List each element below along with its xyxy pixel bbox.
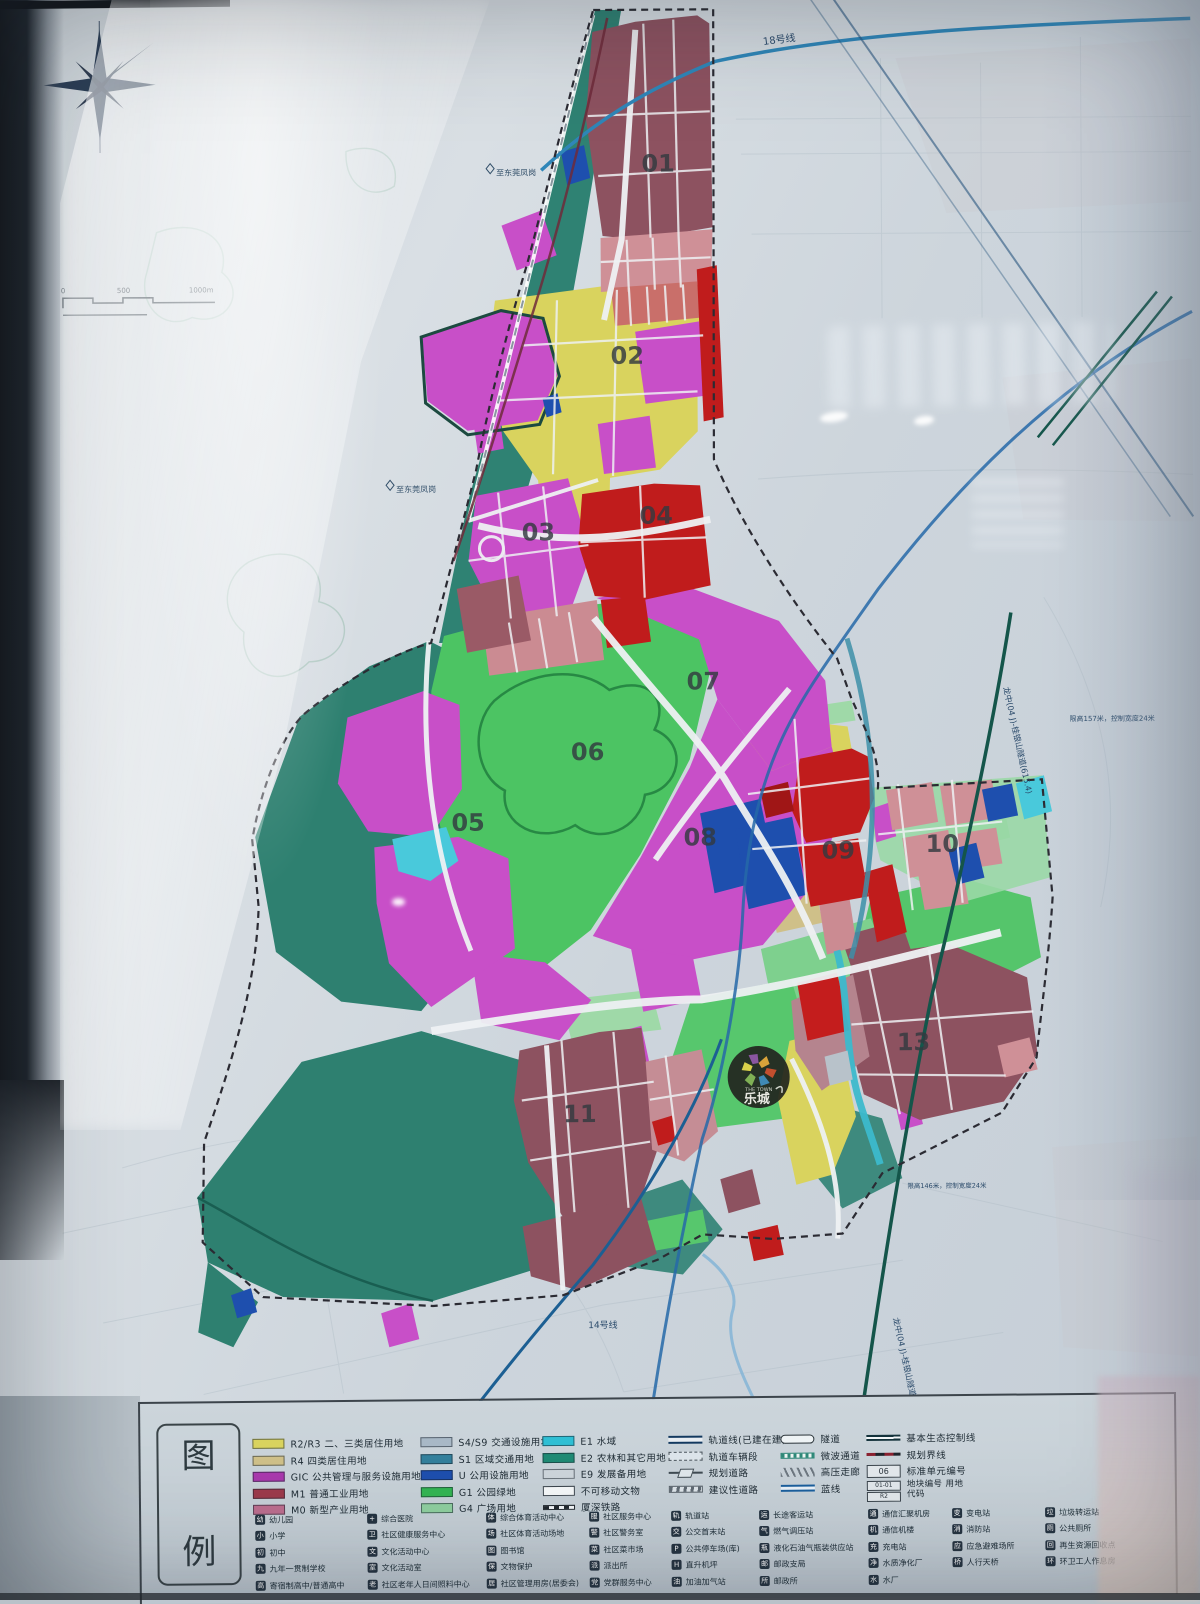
facility-label: 文化活动室 <box>382 1562 422 1573</box>
facility-icon: 桥 <box>953 1557 963 1567</box>
legend-swatch <box>421 1470 453 1480</box>
facility-icon: 幼 <box>255 1515 265 1525</box>
district-number-03: 03 <box>522 518 556 546</box>
facility-icon: 轨 <box>671 1511 681 1521</box>
facility-label: 社区警务室 <box>603 1528 643 1539</box>
legend-landuse-label: G1 公园绿地 <box>459 1484 516 1499</box>
legend-linesymbol-label: 轨道线(已建在建) <box>708 1432 786 1447</box>
facility-label: 再生资源回收点 <box>1059 1539 1115 1551</box>
legend-panel: 图 例 R2/R3 二、三类居住用地R4 四类居住用地GIC 公共管理与服务设施… <box>138 1392 1178 1604</box>
legend-linesymbol-label: 地块编号 用地代码 <box>907 1480 967 1500</box>
legend-facility-item: 机通信机楼 <box>868 1525 914 1536</box>
legend-linesymbol-label: 轨道车辆段 <box>708 1449 758 1463</box>
facility-icon: 消 <box>952 1524 962 1534</box>
legend-facility-item: 高寄宿制高中/普通高中 <box>256 1580 345 1592</box>
legend-swatch <box>543 1504 575 1509</box>
facility-icon: 小 <box>255 1531 265 1541</box>
legend-landuse-label: S1 区域交通用地 <box>458 1451 534 1466</box>
facility-label: 幼儿园 <box>269 1515 293 1526</box>
scale-500: 500 <box>117 287 130 295</box>
legend-linesymbol-item: 隧道 <box>780 1431 840 1446</box>
district-number-08: 08 <box>683 823 717 851</box>
legend-linesymbol-item: 轨道车辆段 <box>668 1449 758 1464</box>
legend-landuse-item: R2/R3 二、三类居住用地 <box>252 1435 403 1450</box>
legend-facility-item: 保文物保护 <box>487 1561 533 1572</box>
legend-linesymbol-item: 建议性道路 <box>669 1482 759 1497</box>
facility-icon: P <box>671 1544 681 1554</box>
facility-label: 文物保护 <box>501 1561 533 1572</box>
legend-facility-item: 警社区警务室 <box>589 1528 643 1540</box>
facility-label: 人行天桥 <box>967 1557 999 1568</box>
legend-landuse-item: S1 区域交通用地 <box>420 1451 534 1466</box>
legend-title-char-1: 图 <box>181 1439 215 1473</box>
legend-facility-item: 回再生资源回收点 <box>1045 1539 1115 1551</box>
facility-icon: 初 <box>255 1548 265 1558</box>
legend-facility-item: 邮邮政支局 <box>760 1559 806 1570</box>
legend-linesymbol-item: 微波通道 <box>780 1448 860 1463</box>
legend-facility-item: 交公交首末站 <box>671 1527 725 1539</box>
legend-swatch <box>421 1486 453 1496</box>
fenggang-label-2: 至东莞凤岗 <box>396 484 436 494</box>
district-number-06: 06 <box>571 738 605 766</box>
facility-icon: 体 <box>486 1513 496 1523</box>
legend-landuse-label: R4 四类居住用地 <box>290 1452 366 1467</box>
facility-icon: 图 <box>486 1545 496 1555</box>
legend-swatch <box>253 1488 285 1498</box>
legend-linesymbol-item: 规划界线 <box>866 1447 946 1462</box>
legend-landuse-item: E9 发展备用地 <box>543 1466 647 1481</box>
facility-icon: 服 <box>589 1512 599 1522</box>
facility-label: 小学 <box>269 1531 285 1542</box>
facility-icon: 九 <box>256 1564 266 1574</box>
district-number-13: 13 <box>897 1028 931 1056</box>
district-number-04: 04 <box>639 502 673 530</box>
facility-icon: 交 <box>671 1527 681 1537</box>
facility-label: 直升机坪 <box>686 1560 718 1571</box>
facility-label: 社区老年人日间照料中心 <box>382 1578 470 1590</box>
facility-label: 综合医院 <box>381 1513 413 1524</box>
facility-label: 环卫工人作息房 <box>1060 1556 1116 1568</box>
facility-label: 公共厕所 <box>1059 1523 1091 1534</box>
boundary-symbol <box>867 1453 901 1456</box>
legend-facility-item: 老社区老年人日间照料中心 <box>368 1578 470 1590</box>
legend-facility-item: 净水质净化厂 <box>869 1558 923 1570</box>
facility-icon: 所 <box>760 1576 770 1586</box>
legend-linesymbol-label: 高压走廊 <box>821 1464 861 1478</box>
legend-facility-item: 油加油加气站 <box>672 1576 726 1588</box>
legend-facility-item: 所邮政所 <box>760 1575 798 1586</box>
planning-board-photo: 010203040506070809101113 18号线 14号线 至东莞凤岗… <box>0 0 1200 1600</box>
legend-landuse-label: U 公用设施用地 <box>459 1467 529 1482</box>
legend-facility-item: 桥人行天桥 <box>953 1557 999 1568</box>
planning-map-svg: 010203040506070809101113 18号线 14号线 至东莞凤岗… <box>0 0 1200 1604</box>
facility-label: 水厂 <box>883 1574 899 1585</box>
legend-landuse-item: 不可移动文物 <box>543 1483 641 1498</box>
facility-label: 公交首末站 <box>685 1527 725 1538</box>
legend-landuse-label: R2/R3 二、三类居住用地 <box>290 1435 403 1450</box>
legend-landuse-item: GIC 公共管理与服务设施用地 <box>253 1468 421 1484</box>
legend-linesymbol-label: 规划界线 <box>906 1447 946 1461</box>
facility-label: 通信机楼 <box>882 1525 914 1536</box>
legend-swatch <box>543 1469 575 1479</box>
depot-symbol <box>669 1452 703 1461</box>
facility-icon: 回 <box>1045 1540 1055 1550</box>
facility-icon: 变 <box>952 1508 962 1518</box>
legend-landuse-label: S4/S9 交通设施用地 <box>458 1434 550 1449</box>
facility-label: 加油加气站 <box>686 1576 726 1587</box>
legend-landuse-label: GIC 公共管理与服务设施用地 <box>291 1468 421 1483</box>
unit-no-symbol: 06 <box>867 1464 901 1477</box>
facility-label: 变电站 <box>966 1508 990 1519</box>
facility-label: 充电站 <box>882 1541 906 1552</box>
legend-landuse-label: E9 发展备用地 <box>581 1466 647 1481</box>
legend-linesymbol-label: 基本生态控制线 <box>906 1430 975 1445</box>
legend-facility-item: 初初中 <box>255 1547 285 1558</box>
legend-landuse-item: R4 四类居住用地 <box>252 1452 366 1467</box>
scale-bar: 0 500 1000m <box>61 286 215 315</box>
legend-landuse-item: M1 普通工业用地 <box>253 1485 369 1500</box>
line18-label: 18号线 <box>762 31 796 48</box>
district-number-05: 05 <box>451 809 485 837</box>
legend-facility-item: 厕公共厕所 <box>1045 1523 1091 1534</box>
legend-linesymbol-item: 蓝线 <box>781 1481 841 1496</box>
legend-facility-item: 党党群服务中心 <box>590 1577 652 1589</box>
blue-line-symbol <box>781 1485 815 1492</box>
legend-facility-item: 应应急避难场所 <box>952 1540 1014 1552</box>
legend-facility-item: 瓶液化石油气瓶装供应站 <box>759 1542 853 1554</box>
legend-swatch <box>421 1453 453 1463</box>
legend-title-char-2: 例 <box>182 1535 216 1569</box>
facility-label: 图书馆 <box>500 1545 524 1556</box>
facility-icon: 环 <box>1046 1556 1056 1566</box>
fenggang-marker-icon <box>486 164 494 174</box>
legend-facility-item: 居社区管理用房(居委会) <box>487 1577 579 1589</box>
legend-linesymbol-item: 01-01R2地块编号 用地代码 <box>867 1480 967 1502</box>
facility-label: 邮政所 <box>774 1575 798 1586</box>
facility-icon: 机 <box>868 1525 878 1535</box>
legend-swatch <box>253 1472 285 1482</box>
facility-label: 垃圾转运站 <box>1059 1507 1099 1518</box>
suggested-road-symbol <box>669 1486 703 1493</box>
facility-label: 综合体育活动中心 <box>500 1512 564 1524</box>
facility-label: 党群服务中心 <box>604 1577 652 1588</box>
facility-icon: 运 <box>759 1510 769 1520</box>
legend-linesymbol-label: 隧道 <box>820 1431 840 1445</box>
facility-label: 液化石油气瓶装供应站 <box>773 1542 853 1554</box>
legend-landuse-item: U 公用设施用地 <box>421 1467 529 1482</box>
district-number-09: 09 <box>822 836 856 864</box>
background-blocks <box>895 38 1198 1358</box>
legend-linesymbol-item: 基本生态控制线 <box>866 1430 975 1445</box>
legend-facility-item: +综合医院 <box>367 1513 413 1524</box>
rail-line-symbol <box>668 1436 702 1444</box>
legend-linesymbol-item: 06标准单元编号 <box>867 1463 967 1478</box>
legend-landuse-label: 不可移动文物 <box>581 1483 641 1498</box>
facility-label: 初中 <box>269 1547 285 1558</box>
microwave-symbol <box>781 1452 815 1458</box>
legend-swatch <box>543 1485 575 1495</box>
facility-icon: 保 <box>487 1562 497 1572</box>
legend-facility-item: 消消防站 <box>952 1524 990 1535</box>
legend-swatch <box>542 1436 574 1446</box>
facility-icon: 垃 <box>1045 1507 1055 1517</box>
legend-landuse-label: M0 新型产业用地 <box>291 1502 369 1517</box>
legend-landuse-item: S4/S9 交通设施用地 <box>420 1434 550 1449</box>
facility-label: 轨道站 <box>685 1511 709 1522</box>
facility-icon: 通 <box>868 1509 878 1519</box>
legend-facility-item: 菜社区菜市场 <box>589 1544 643 1556</box>
legend-facility-item: 变变电站 <box>952 1508 990 1519</box>
facility-label: 文化活动中心 <box>381 1546 429 1557</box>
lecheng-logo: THE TOWN 乐城 <box>728 1046 790 1108</box>
facility-icon: 文 <box>367 1547 377 1557</box>
legend-linesymbol-item: 高压走廊 <box>781 1464 861 1479</box>
facility-label: 社区管理用房(居委会) <box>501 1577 579 1589</box>
legend-facility-item: 图图书馆 <box>486 1545 524 1556</box>
facility-icon: 瓶 <box>759 1543 769 1553</box>
facility-icon: 充 <box>868 1542 878 1552</box>
legend-landuse-label: E1 水域 <box>580 1433 616 1447</box>
tunnel-symbol <box>780 1434 814 1443</box>
logo-text-name: 乐城 <box>744 1091 770 1107</box>
facility-label: 社区菜市场 <box>603 1544 643 1555</box>
legend-swatch <box>420 1437 452 1447</box>
fenggang-label-1: 至东莞凤岗 <box>496 167 536 177</box>
scale-0: 0 <box>61 287 66 295</box>
facility-icon: 高 <box>256 1580 266 1590</box>
legend-linesymbol-label: 标准单元编号 <box>907 1463 967 1478</box>
note-bottom: 限高146米，控制宽度24米 <box>907 1181 987 1190</box>
compass-rose-icon <box>43 21 156 154</box>
legend-facility-item: 环环卫工人作息房 <box>1046 1556 1116 1568</box>
planned-road-symbol <box>669 1472 703 1474</box>
facility-label: 长途客运站 <box>773 1510 813 1521</box>
facility-label: 应急避难场所 <box>966 1540 1014 1551</box>
legend-landuse-item: E2 农林和其它用地 <box>542 1449 666 1464</box>
legend-facility-item: 气燃气调压站 <box>759 1526 813 1538</box>
line14-label: 14号线 <box>588 1319 618 1331</box>
legend-linesymbol-label: 微波通道 <box>820 1448 860 1462</box>
legend-swatch <box>253 1455 285 1465</box>
plot-no-symbol: 01-01R2 <box>867 1480 901 1501</box>
legend-facility-item: 九九年一贯制学校 <box>256 1563 326 1575</box>
facility-icon: 应 <box>952 1541 962 1551</box>
facility-icon: 居 <box>487 1578 497 1588</box>
facility-icon: 厕 <box>1045 1524 1055 1534</box>
legend-facility-item: 场社区体育活动场地 <box>486 1528 564 1540</box>
legend-facility-item: 充充电站 <box>868 1541 906 1552</box>
facility-label: 水质净化厂 <box>883 1558 923 1569</box>
hv-corridor-symbol <box>781 1467 815 1476</box>
facility-label: 九年一贯制学校 <box>270 1563 326 1575</box>
faint-park-outlines <box>144 148 399 677</box>
facility-icon: 室 <box>368 1563 378 1573</box>
facility-label: 派出所 <box>604 1560 628 1571</box>
legend-facility-item: 小小学 <box>255 1531 285 1542</box>
legend-facility-item: 垃垃圾转运站 <box>1045 1507 1099 1519</box>
legend-landuse-label: E2 农林和其它用地 <box>580 1449 666 1464</box>
facility-icon: 菜 <box>589 1544 599 1554</box>
legend-facility-item: 轨轨道站 <box>671 1511 709 1522</box>
facility-label: 寄宿制高中/普通高中 <box>270 1580 345 1592</box>
legend-linesymbol-item: 轨道线(已建在建) <box>668 1432 786 1447</box>
legend-facility-item: 运长途客运站 <box>759 1510 813 1522</box>
eco-line-symbol <box>866 1435 900 1441</box>
facility-icon: 派 <box>590 1561 600 1571</box>
legend-linesymbol-label: 规划道路 <box>709 1465 749 1479</box>
facility-label: 消防站 <box>966 1524 990 1535</box>
facility-icon: 警 <box>589 1528 599 1538</box>
facility-icon: 场 <box>486 1529 496 1539</box>
facility-label: 邮政支局 <box>774 1559 806 1570</box>
legend-title-box: 图 例 <box>156 1423 242 1586</box>
legend-landuse-item: G1 公园绿地 <box>421 1484 516 1499</box>
legend-facility-item: 幼幼儿园 <box>255 1515 293 1526</box>
facility-label: 公共停车场(库) <box>685 1543 739 1555</box>
legend-facility-item: 水水厂 <box>869 1574 899 1585</box>
district-number-01: 01 <box>641 150 675 178</box>
facility-icon: 老 <box>368 1579 378 1589</box>
legend-facility-item: P公共停车场(库) <box>671 1543 739 1555</box>
legend-linesymbol-label: 蓝线 <box>821 1481 841 1495</box>
legend-landuse-label: M1 普通工业用地 <box>291 1485 369 1500</box>
legend-swatch <box>421 1503 453 1513</box>
legend-landuse-item: E1 水域 <box>542 1433 616 1448</box>
facility-icon: 党 <box>590 1577 600 1587</box>
facility-label: 社区健康服务中心 <box>381 1529 445 1541</box>
facility-icon: 水 <box>869 1574 879 1584</box>
facility-icon: 气 <box>759 1526 769 1536</box>
district-number-11: 11 <box>563 1100 597 1128</box>
legend-swatch <box>543 1452 575 1462</box>
fenggang-marker-icon <box>386 480 394 490</box>
district-number-02: 02 <box>610 342 644 370</box>
legend-facility-item: 卫社区健康服务中心 <box>367 1529 445 1541</box>
river-bottom <box>703 1254 764 1419</box>
facility-icon: H <box>672 1560 682 1570</box>
facility-label: 社区体育活动场地 <box>500 1528 564 1540</box>
legend-linesymbol-item: 规划道路 <box>669 1465 749 1480</box>
legend-facility-item: 文文化活动中心 <box>367 1546 429 1558</box>
legend-facility-item: 派派出所 <box>590 1560 628 1571</box>
district-number-10: 10 <box>925 830 959 858</box>
legend-swatch <box>252 1439 284 1449</box>
facility-label: 社区服务中心 <box>603 1511 651 1522</box>
scale-1000: 1000m <box>189 286 214 294</box>
facility-label: 燃气调压站 <box>773 1526 813 1537</box>
facility-icon: 油 <box>672 1576 682 1586</box>
legend-facility-item: 服社区服务中心 <box>589 1511 651 1523</box>
note-right: 限高157米，控制宽度24米 <box>1069 714 1154 724</box>
legend-facility-item: 室文化活动室 <box>368 1562 422 1574</box>
legend-swatch <box>253 1505 285 1515</box>
facility-label: 通信汇聚机房 <box>882 1508 930 1519</box>
legend-linesymbol-label: 建议性道路 <box>709 1482 759 1496</box>
district-number-07: 07 <box>686 667 720 695</box>
facility-icon: + <box>367 1514 377 1524</box>
legend-facility-item: H直升机坪 <box>672 1560 718 1571</box>
facility-icon: 净 <box>869 1558 879 1568</box>
facility-icon: 邮 <box>760 1559 770 1569</box>
facility-icon: 卫 <box>367 1530 377 1540</box>
legend-facility-item: 通通信汇聚机房 <box>868 1508 930 1520</box>
legend-facility-item: 体综合体育活动中心 <box>486 1512 564 1524</box>
